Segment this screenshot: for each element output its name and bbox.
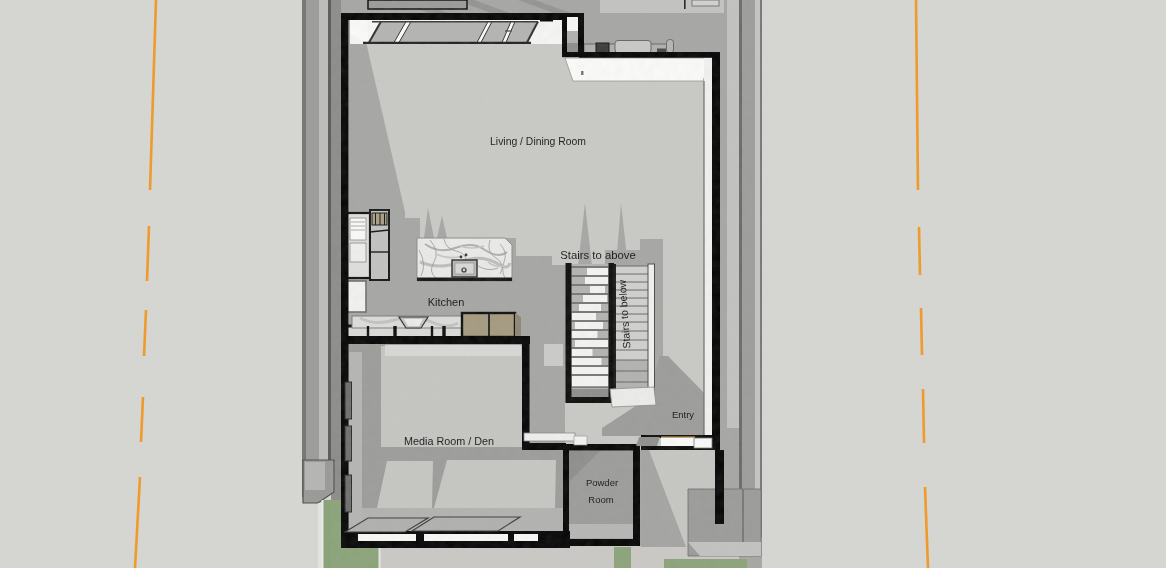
- svg-text:Kitchen: Kitchen: [428, 296, 465, 308]
- svg-text:Room: Room: [588, 494, 613, 505]
- svg-text:Powder: Powder: [586, 477, 618, 488]
- svg-text:Living / Dining Room: Living / Dining Room: [490, 136, 586, 147]
- svg-text:Stairs to above: Stairs to above: [560, 249, 635, 261]
- svg-text:Media Room / Den: Media Room / Den: [404, 435, 494, 447]
- svg-text:Entry: Entry: [672, 409, 694, 420]
